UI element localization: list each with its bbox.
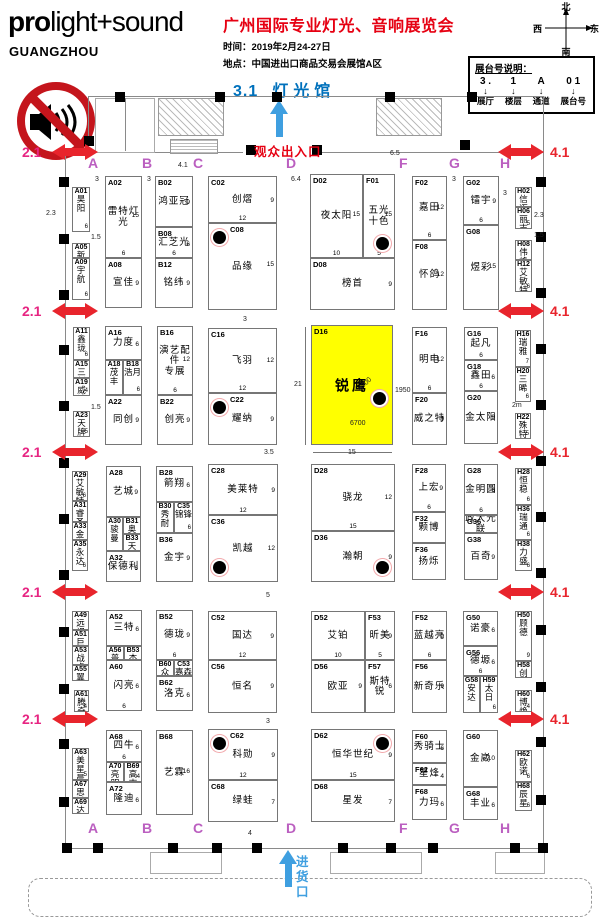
booth-B30: B30秀耐 bbox=[156, 502, 174, 533]
dimension-label: 1.5 bbox=[91, 404, 101, 411]
booth-D68: D68星发7 bbox=[311, 780, 395, 822]
booth-size-label: 9 bbox=[186, 199, 190, 206]
aisle-ref-left: 2.1 bbox=[22, 144, 41, 160]
booth-size-label: 4 bbox=[84, 704, 87, 710]
booth-size-label: 9 bbox=[270, 416, 274, 423]
booth-width-label: 6 bbox=[173, 652, 177, 659]
booth-size-label: 6 bbox=[527, 284, 530, 290]
booth-size-label: 9 bbox=[134, 489, 138, 496]
booth-size-label: 12 bbox=[437, 356, 444, 363]
booth-H12: H12艾敏特6 bbox=[515, 260, 532, 292]
booth-D62: D62恒华世纪915 bbox=[311, 729, 395, 780]
booth-exhibitor-name: 锦锋 bbox=[175, 510, 192, 519]
booth-exhibitor-name: 睿圣 bbox=[73, 509, 87, 522]
booth-size-label: 9 bbox=[186, 632, 190, 639]
booth-G20: G20金太阳9 bbox=[464, 391, 498, 444]
booth-exhibitor-name: 宇航 bbox=[73, 266, 89, 283]
column-pillar-icon bbox=[376, 737, 389, 750]
wall-pillar bbox=[536, 177, 546, 187]
double-arrow-icon bbox=[498, 144, 544, 160]
booth-size-label: 6 bbox=[440, 745, 444, 752]
booth-exhibitor-name: 战虎 bbox=[73, 654, 88, 665]
booth-F32: F32颗博 bbox=[412, 512, 446, 543]
exhibition-floor-plan: prolight+sound GUANGZHOU 广州国际专业灯光、音响展览会 … bbox=[0, 0, 600, 919]
booth-id: C02 bbox=[211, 178, 225, 187]
booth-size-label: 9 bbox=[440, 683, 444, 690]
booth-A32: A32保德利6 bbox=[106, 551, 141, 582]
dock-room bbox=[330, 852, 422, 874]
booth-G18: G18鑫田66 bbox=[464, 360, 498, 391]
booth-exhibitor-name: 骏曼 bbox=[107, 525, 122, 542]
booth-G56: G56德塬66 bbox=[463, 646, 498, 676]
booth-A11: A11鑫珑6 bbox=[73, 327, 90, 360]
booth-size-label: 6 bbox=[85, 224, 88, 230]
booth-id: B36 bbox=[159, 535, 173, 544]
column-pillar-icon bbox=[213, 231, 226, 244]
aisle-ref-right: 4.1 bbox=[550, 711, 569, 727]
booth-size-label: 9 bbox=[270, 197, 274, 204]
booth-id: B68 bbox=[159, 732, 173, 741]
booth-size-label: 6 bbox=[527, 803, 530, 809]
booth-C52: C52国达912 bbox=[208, 611, 277, 660]
booth-A33: A33金海洋 bbox=[72, 522, 88, 540]
booth-size-label: 6 bbox=[440, 801, 444, 808]
booth-exhibitor-name: 创宇 bbox=[516, 669, 531, 678]
booth-H59: H59太日6 bbox=[480, 676, 498, 713]
booth-width-label: 6 bbox=[173, 387, 177, 394]
booth-id: C56 bbox=[211, 662, 225, 671]
booth-exhibitor-name: 瑞雅 bbox=[516, 338, 530, 355]
booth-D16: D16锐鹰 bbox=[311, 325, 393, 445]
booth-C35: C35锦锋6 bbox=[174, 502, 193, 533]
booth-A60: A60闪亮66 bbox=[106, 660, 142, 711]
wall-pillar bbox=[215, 92, 225, 102]
booth-size-label: 9 bbox=[135, 280, 139, 287]
booth-size-label: 9 bbox=[491, 554, 495, 561]
wall-pillar bbox=[59, 684, 69, 694]
booth-A29: A29艾敏特6 bbox=[72, 471, 88, 501]
booth-width-label: 6 bbox=[479, 217, 483, 224]
booth-C56: C56恒名9 bbox=[208, 660, 277, 713]
wall-pillar bbox=[115, 92, 125, 102]
wall-pillar bbox=[460, 140, 470, 150]
booth-exhibitor-name: 达欣 bbox=[73, 806, 88, 814]
booth-F68: F68力玛6 bbox=[412, 785, 447, 820]
booth-D28: D28骁龙1215 bbox=[311, 464, 395, 531]
booth-B28: B28箭翔6 bbox=[156, 466, 193, 502]
booth-F02: F02嘉田126 bbox=[412, 176, 447, 240]
booth-G02: G02镭宇96 bbox=[463, 176, 499, 225]
booth-id: G60 bbox=[466, 732, 480, 741]
wall-pillar bbox=[168, 843, 178, 853]
booth-A09: A09宇航6 bbox=[72, 258, 90, 300]
booth-size-label: 7 bbox=[526, 359, 529, 365]
booth-width-label: 10 bbox=[334, 652, 341, 659]
booth-width-label: 6 bbox=[122, 754, 126, 761]
double-arrow-icon bbox=[498, 584, 544, 600]
booth-size-label: 9 bbox=[491, 414, 495, 421]
booth-A56: A56普慧 bbox=[106, 646, 124, 660]
booth-G38: G38百奇9 bbox=[464, 533, 498, 580]
booth-id: B28 bbox=[159, 468, 173, 477]
aisle-ref-right: 4.1 bbox=[550, 144, 569, 160]
wall-pillar bbox=[252, 843, 262, 853]
booth-size-label: 12 bbox=[268, 545, 275, 552]
booth-size-label: 15 bbox=[489, 263, 496, 270]
booth-F20: F20威之特9 bbox=[412, 393, 447, 445]
booth-size-label: 9 bbox=[186, 555, 190, 562]
booth-exhibitor-name: 恒稳 bbox=[516, 476, 531, 493]
booth-size-label: 9 bbox=[440, 416, 444, 423]
booth-exhibitor-name: 天骄 bbox=[124, 542, 140, 551]
booth-id: G50 bbox=[466, 613, 480, 622]
aisle-letter-A: A bbox=[88, 820, 98, 836]
aisle-letter-B: B bbox=[142, 820, 152, 836]
booth-size-label: 9 bbox=[527, 653, 530, 659]
wall-pillar bbox=[428, 843, 438, 853]
aisle-letter-H: H bbox=[500, 820, 510, 836]
booth-size-label: 6 bbox=[135, 341, 139, 348]
booth-id: A28 bbox=[109, 468, 123, 477]
booth-id: F57 bbox=[368, 662, 381, 671]
legend-col-floor: 1 ↓ 楼层 bbox=[505, 76, 522, 107]
visitor-entrance-arrow-icon bbox=[269, 100, 289, 137]
booth-F52: F52蓝越亮96 bbox=[412, 611, 447, 660]
booth-id: D16 bbox=[314, 327, 328, 336]
booth-A30: A30骏曼 bbox=[106, 517, 123, 551]
booth-B22: B22创亮9 bbox=[157, 395, 193, 445]
booth-width-label: 12 bbox=[239, 507, 246, 514]
booth-exhibitor-name: 三新 bbox=[74, 368, 89, 378]
booth-size-label: 6 bbox=[491, 627, 495, 634]
booth-F56: F56新奇乐9 bbox=[412, 660, 447, 713]
booth-id: A60 bbox=[109, 662, 123, 671]
booth-size-label: 6 bbox=[135, 626, 139, 633]
booth-C68: C68绿蛙7 bbox=[208, 780, 278, 822]
booth-size-label: 16 bbox=[183, 768, 190, 775]
booth-exhibitor-name: 奥音德 bbox=[124, 525, 140, 534]
booth-id: B62 bbox=[159, 678, 173, 687]
loading-dock-outline bbox=[28, 878, 592, 917]
booth-exhibitor-name: 三晞 bbox=[516, 375, 530, 392]
wall-pillar bbox=[536, 344, 546, 354]
booth-size-label: 6 bbox=[137, 387, 140, 393]
booth-B36: B36金宇9 bbox=[156, 533, 193, 582]
booth-id: F08 bbox=[415, 242, 428, 251]
wall-pillar bbox=[536, 795, 546, 805]
booth-H68: H68辰星6 bbox=[515, 782, 532, 811]
double-arrow-icon bbox=[498, 303, 544, 319]
booth-id: D28 bbox=[314, 466, 328, 475]
booth-exhibitor-name: 扬烁 bbox=[413, 556, 445, 567]
booth-size-label: 9 bbox=[186, 417, 190, 424]
wall-pillar bbox=[510, 843, 520, 853]
booth-H62: H62欧诺6 bbox=[515, 750, 532, 782]
booth-exhibitor-name: 翼德 bbox=[73, 673, 88, 681]
wall-pillar bbox=[385, 92, 395, 102]
booth-A01: A01昊阳6 bbox=[72, 187, 90, 232]
down-arrow-icon: ↓ bbox=[483, 87, 488, 95]
booth-C53: C53嘉森 bbox=[174, 660, 193, 676]
wall-pillar bbox=[536, 568, 546, 578]
booth-A51: A51巨盈 bbox=[72, 630, 89, 646]
hall-number: 3.1 bbox=[233, 83, 258, 100]
dimension-label: 5 bbox=[266, 592, 270, 599]
wall-pillar bbox=[536, 400, 546, 410]
booth-size-label: 6 bbox=[493, 705, 496, 711]
booth-C02: C02创熠912 bbox=[208, 176, 277, 223]
booth-G08: G08煜彩15 bbox=[463, 225, 499, 310]
booth-B69: B69高志忠4 bbox=[124, 762, 142, 782]
booth-B68: B68艺霖16 bbox=[156, 730, 193, 815]
booth-width-label: 6 bbox=[172, 250, 176, 257]
expo-venue: 地点：中国进出口商品交易会展馆A区 bbox=[223, 56, 488, 70]
double-arrow-icon bbox=[52, 303, 98, 319]
booth-exhibitor-name: 恒华世纪 bbox=[312, 749, 394, 760]
booth-size-label: 5 bbox=[527, 221, 530, 227]
booth-exhibitor-name: 鑫珑 bbox=[74, 335, 89, 352]
booth-id: C08 bbox=[230, 225, 244, 234]
booth-id: F16 bbox=[415, 329, 428, 338]
wall-pillar bbox=[338, 843, 348, 853]
booth-id: F20 bbox=[415, 395, 428, 404]
booth-size-label: 6 bbox=[527, 497, 530, 503]
room-divider bbox=[125, 98, 126, 151]
booth-B18: B18浩月6 bbox=[123, 360, 142, 395]
booth-exhibitor-name: 瑞通 bbox=[516, 513, 531, 530]
booth-id: A02 bbox=[108, 178, 122, 187]
booth-width-label: 15 bbox=[349, 523, 356, 530]
booth-id: B02 bbox=[158, 178, 172, 187]
booth-G28: G28金明圆66 bbox=[464, 464, 498, 515]
dimension-label: 3 bbox=[147, 176, 151, 183]
booth-size-label: 7 bbox=[388, 799, 392, 806]
wall-bottom bbox=[65, 848, 544, 849]
booth-id: B52 bbox=[159, 612, 173, 621]
aisle-ref-left: 2.1 bbox=[22, 711, 41, 727]
booth-exhibitor-name: 信迈 bbox=[516, 195, 531, 207]
booth-exhibitor-name: 起凡 bbox=[465, 338, 497, 349]
double-arrow-icon bbox=[52, 144, 98, 160]
booth-exhibitor-name: 欧亚 bbox=[312, 681, 364, 692]
column-pillar-icon bbox=[213, 561, 226, 574]
booth-A16: A16力度6 bbox=[105, 326, 142, 360]
column-pillar-icon bbox=[213, 737, 226, 750]
aisle-ref-left: 2.1 bbox=[22, 584, 41, 600]
booth-H60: H60博焕4 bbox=[515, 690, 532, 712]
booth-B33: B33天骄 bbox=[123, 534, 141, 551]
booth-size-label: 4 bbox=[440, 773, 444, 780]
booth-width-label: 5 bbox=[378, 652, 382, 659]
aisle-ref-right: 4.1 bbox=[550, 303, 569, 319]
booth-C62: C62科勋912 bbox=[208, 729, 278, 780]
booth-size-label: 9 bbox=[439, 485, 443, 492]
booth-size-label: 9 bbox=[186, 280, 190, 287]
booth-size-label: 7 bbox=[271, 799, 275, 806]
booth-width-label: 6 bbox=[427, 504, 431, 511]
booth-F36: F36扬烁 bbox=[412, 543, 446, 580]
booth-exhibitor-name: 颗博 bbox=[413, 522, 445, 533]
booth-id: F28 bbox=[415, 466, 428, 475]
booth-A70: A70亮明 bbox=[106, 762, 124, 782]
wall-pillar bbox=[536, 288, 546, 298]
wall-pillar bbox=[59, 290, 69, 300]
booth-size-label: 12 bbox=[437, 271, 444, 278]
booth-H06: H06丽志5 bbox=[515, 207, 532, 229]
booth-size-label: 4 bbox=[85, 388, 88, 394]
dimension-label: 3 bbox=[452, 176, 456, 183]
booth-width-label: 6 bbox=[428, 385, 432, 392]
booth-H16: H16瑞雅7 bbox=[515, 330, 531, 367]
booth-D08: D08榜首9 bbox=[310, 258, 395, 310]
booth-G50: G50诺豪6 bbox=[463, 611, 498, 646]
dock-room bbox=[150, 852, 222, 874]
compass-cross-icon bbox=[539, 8, 593, 52]
dimension-label: 1.5 bbox=[534, 232, 544, 239]
booth-width-label: 12 bbox=[239, 772, 246, 779]
booth-exhibitor-name: 众纳 bbox=[157, 668, 173, 676]
booth-id: D52 bbox=[314, 613, 328, 622]
aisle-ref-right: 4.1 bbox=[550, 584, 569, 600]
booth-F16: F16明电126 bbox=[412, 327, 447, 393]
booth-F62: F62星烽4 bbox=[412, 763, 447, 785]
booth-H28: H28恒稳6 bbox=[515, 468, 532, 505]
booth-A05: A05新产业 bbox=[72, 243, 90, 258]
booth-width-label: 6 bbox=[479, 352, 483, 359]
booth-size-label: 6 bbox=[83, 563, 86, 569]
booth-B60: B60众纳 bbox=[156, 660, 174, 676]
booth-width-label: 6 bbox=[479, 383, 483, 390]
booth-exhibitor-name: 榜首 bbox=[311, 279, 394, 290]
booth-size-label: 9 bbox=[492, 198, 496, 205]
dimension-label: 2.3 bbox=[46, 210, 56, 217]
booth-id: F53 bbox=[368, 613, 381, 622]
booth-A67: A67思城 bbox=[72, 780, 89, 798]
goods-entrance-label: 进货口 bbox=[296, 855, 310, 900]
prolight-sound-logo: prolight+sound bbox=[8, 8, 183, 36]
dimension-label: 3 bbox=[95, 176, 99, 183]
booth-F57: F57斯特锐6 bbox=[365, 660, 395, 713]
dimension-label: 6.4 bbox=[291, 176, 301, 183]
booth-size-label: 9 bbox=[271, 487, 275, 494]
booth-exhibitor-name: 昊阳 bbox=[73, 195, 89, 212]
booth-id: G08 bbox=[466, 227, 480, 236]
booth-size-label: 6 bbox=[527, 563, 530, 569]
booth-H38: H38力盛6 bbox=[515, 540, 532, 571]
down-arrow-icon: ↓ bbox=[539, 87, 544, 95]
booth-id: G20 bbox=[467, 393, 481, 402]
escalator bbox=[376, 98, 442, 136]
booth-G36: G36政大光联 bbox=[464, 515, 498, 533]
booth-id: A52 bbox=[109, 612, 123, 621]
title-block: 广州国际专业灯光、音响展览会 时间：2019年2月24-27日 地点：中国进出口… bbox=[223, 12, 488, 101]
dimension-label: 3 bbox=[266, 718, 270, 725]
double-arrow-icon bbox=[52, 711, 98, 727]
wall-pillar bbox=[272, 92, 282, 102]
booth-number-legend: 展台号说明： 3 . ↓ 展厅 1 ↓ 楼层 A ↓ 通道 0 1 ↓ 展台号 bbox=[468, 56, 595, 114]
column-pillar-icon bbox=[376, 561, 389, 574]
booth-exhibitor-name: 顾德 bbox=[516, 619, 531, 636]
booth-id: D08 bbox=[313, 260, 327, 269]
booth-F08: F08怀鸽12 bbox=[412, 240, 447, 310]
aisle-letter-G: G bbox=[449, 155, 460, 171]
booth-F01: F01五光 十色155 bbox=[363, 174, 395, 258]
booth-id: G38 bbox=[467, 535, 481, 544]
booth-size-label: 9 bbox=[271, 752, 275, 759]
legend-title: 展台号说明： bbox=[475, 61, 588, 75]
visitor-entrance-label: 观众出入口 bbox=[254, 141, 322, 160]
double-arrow-icon bbox=[498, 444, 544, 460]
booth-A23: A23天牌5 bbox=[73, 411, 90, 437]
booth-exhibitor-name: 耀纳 bbox=[209, 414, 276, 425]
legend-col-aisle: A ↓ 通道 bbox=[533, 76, 550, 107]
column-pillar-icon bbox=[213, 401, 226, 414]
logo-city: GUANGZHOU bbox=[9, 44, 99, 59]
booth-id: G02 bbox=[466, 178, 480, 187]
compass-rose: 北 南 西 东 bbox=[533, 0, 599, 58]
booth-exhibitor-name: 茂丰 bbox=[106, 368, 122, 385]
booth-id: C36 bbox=[211, 517, 225, 526]
dimension-label: 6700 bbox=[350, 420, 366, 427]
booth-H08: H08伟峰 bbox=[515, 240, 532, 260]
wall-pillar bbox=[212, 843, 222, 853]
aisle-letter-G: G bbox=[449, 820, 460, 836]
booth-size-label: 15 bbox=[353, 211, 360, 218]
booth-size-label: 4 bbox=[137, 774, 140, 780]
booth-H20: H20三晞6 bbox=[515, 367, 531, 402]
dimension-label: 4 bbox=[248, 830, 252, 837]
aisle-ref-left: 2.1 bbox=[22, 444, 41, 460]
down-arrow-icon: ↓ bbox=[571, 87, 576, 95]
column-pillar-icon bbox=[376, 237, 389, 250]
booth-size-label: 6 bbox=[491, 659, 495, 666]
booth-size-label: 15 bbox=[267, 261, 274, 268]
wall-pillar bbox=[467, 92, 477, 102]
wall-pillar bbox=[536, 512, 546, 522]
booth-C22: C22耀纳9 bbox=[208, 393, 277, 445]
booth-size-label: 6 bbox=[491, 374, 495, 381]
booth-D02: D02夜太阳1510 bbox=[310, 174, 363, 258]
booth-id: F36 bbox=[415, 545, 428, 554]
booth-A22: A22同创9 bbox=[105, 395, 142, 445]
wall-pillar bbox=[93, 843, 103, 853]
booth-B53: B53杰江 bbox=[124, 646, 142, 660]
booth-B02: B02鸿亚冠9 bbox=[155, 176, 193, 227]
booth-width-label: 12 bbox=[239, 385, 246, 392]
dimension-label: 3.5 bbox=[264, 449, 274, 456]
booth-size-label: 6 bbox=[186, 482, 190, 489]
wall-pillar bbox=[59, 401, 69, 411]
column-pillar-icon bbox=[373, 392, 386, 405]
aisle-letter-B: B bbox=[142, 155, 152, 171]
booth-B12: B12铭纬9 bbox=[155, 258, 193, 308]
booth-size-label: 9 bbox=[388, 633, 392, 640]
booth-size-label: 9 bbox=[388, 554, 392, 561]
booth-exhibitor-name: 创熠 bbox=[209, 194, 276, 205]
booth-size-label: 9 bbox=[135, 417, 139, 424]
dimension-label: 6.5 bbox=[390, 150, 400, 157]
wall-pillar bbox=[59, 570, 69, 580]
booth-size-label: 6 bbox=[186, 241, 190, 248]
booth-A35: A35永达6 bbox=[72, 540, 88, 571]
booth-A08: A08宣佳9 bbox=[105, 258, 142, 308]
dimension-label: 4.1 bbox=[178, 162, 188, 169]
booth-id: B12 bbox=[158, 260, 172, 269]
booth-size-label: 12 bbox=[267, 357, 274, 364]
booth-id: C62 bbox=[230, 731, 244, 740]
wall-pillar bbox=[536, 737, 546, 747]
booth-exhibitor-name: 艾铂 bbox=[312, 630, 364, 641]
